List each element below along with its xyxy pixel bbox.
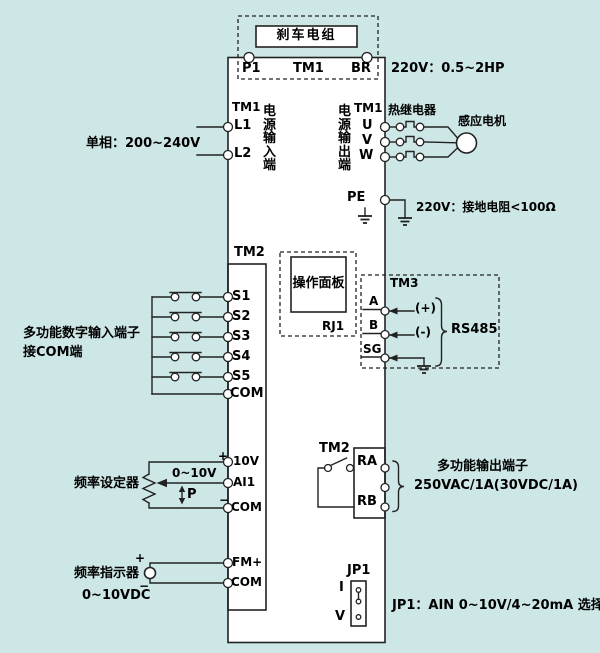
terminal-br-label: BR — [351, 62, 371, 76]
jp1-note: JP1：AIN 0~10V/4~20mA 选择 — [392, 599, 600, 613]
tm1-top-label: TM1 — [293, 62, 324, 76]
ao-plus-sign: + — [135, 552, 145, 565]
ground-note: 220V：接地电阻<100Ω — [416, 201, 556, 214]
terminal-s1-label: S1 — [232, 290, 250, 304]
operation-panel-label: 操作面板 — [291, 277, 346, 291]
thermal-relay-label: 热继电器 — [388, 104, 436, 117]
terminal-s2-label: S2 — [232, 310, 250, 324]
terminal-10v-label: 10V — [233, 455, 259, 468]
switch-s3 — [152, 333, 224, 341]
rs485-label: RS485 — [451, 323, 498, 337]
terminal-fm-label: FM+ — [232, 556, 262, 569]
relay-note-line1: 多功能输出端子 — [437, 460, 528, 474]
digital-input-note-line1: 多功能数字输入端子 — [23, 327, 140, 341]
motor-label: 感应电机 — [458, 115, 506, 128]
switch-s2 — [152, 313, 224, 321]
jp1-i-label: I — [339, 581, 344, 595]
terminal-s5-label: S5 — [232, 370, 250, 384]
ground-symbol-sg — [417, 366, 431, 373]
input-phase-note: 单相：200~240V — [86, 137, 200, 151]
terminal-b-circle — [381, 331, 389, 339]
terminal-v-label: V — [362, 134, 372, 148]
terminal-ocom-label: COM — [231, 576, 262, 589]
tm3-label: TM3 — [390, 277, 418, 290]
ai-minus-sign: − — [219, 494, 229, 507]
terminal-mid-circle — [381, 484, 389, 492]
terminal-pe-circle — [381, 196, 390, 205]
thermal-relay-v — [390, 137, 457, 146]
switch-s5 — [152, 373, 224, 381]
digital-input-wires — [152, 293, 224, 395]
wiring-diagram-canvas: 刹车电组 P1 TM1 BR 220V：0.5~2HP TM1 L1 L2 单相… — [0, 0, 600, 653]
brake-unit-label: 刹车电组 — [256, 29, 357, 43]
relay-note-line2: 250VAC/1A(30VDC/1A) — [414, 479, 578, 493]
ground-symbol-external — [398, 218, 412, 225]
pot-label: 频率设定器 — [74, 477, 139, 491]
terminal-u-label: U — [362, 119, 373, 133]
terminal-ai1-circle — [224, 479, 233, 488]
terminal-sg-circle — [381, 354, 389, 362]
ai-plus-sign: + — [218, 450, 228, 463]
terminal-ai1-label: AI1 — [233, 476, 255, 489]
meter-symbol — [145, 568, 156, 579]
ai-range-label: 0~10V — [172, 467, 216, 480]
terminal-rb-label: RB — [357, 495, 377, 509]
tm1-output-label: TM1 — [354, 102, 382, 115]
tm2-strip-label: TM2 — [234, 246, 265, 260]
potentiometer-symbol — [143, 474, 155, 503]
terminal-a-circle — [381, 307, 389, 315]
motor-symbol — [457, 133, 477, 153]
thermal-relay-u — [390, 122, 458, 139]
power-input-vlabel: 电源输入端 — [262, 105, 277, 173]
terminal-p1-label: P1 — [242, 62, 261, 76]
digital-input-note-line2: 接COM端 — [23, 346, 83, 360]
terminal-l1-label: L1 — [234, 119, 251, 133]
power-input-wires — [197, 127, 224, 155]
tm1-input-label: TM1 — [232, 101, 260, 114]
rs485-brace — [436, 298, 447, 366]
terminal-w-circle — [381, 153, 390, 162]
terminal-acom-label: COM — [231, 501, 262, 514]
switch-s1 — [152, 293, 224, 301]
thermal-relay-w — [390, 148, 458, 161]
tm2-relay-label: TM2 — [319, 442, 350, 456]
rj1-label: RJ1 — [322, 320, 344, 333]
terminal-u-circle — [381, 123, 390, 132]
terminal-l2-label: L2 — [234, 147, 251, 161]
terminal-b-label: B — [369, 319, 378, 332]
terminal-sg-label: SG — [363, 343, 382, 356]
terminal-ra-label: RA — [357, 455, 377, 469]
terminal-l2-circle — [224, 151, 233, 160]
terminal-ra-circle — [381, 464, 389, 472]
jp1-v-label: V — [335, 610, 345, 624]
relay-brace — [393, 461, 404, 512]
power-output-vlabel: 电源输出端 — [337, 105, 352, 173]
terminal-l1-circle — [224, 123, 233, 132]
meter-label: 频率指示器 — [74, 567, 139, 581]
terminal-a-label: A — [369, 295, 378, 308]
brake-rating-note: 220V：0.5~2HP — [391, 62, 505, 76]
switch-s4 — [152, 353, 224, 361]
terminal-s3-label: S3 — [232, 330, 250, 344]
jp1-label: JP1 — [347, 564, 370, 578]
terminal-com-label: COM — [230, 387, 264, 401]
terminal-rb-circle — [381, 503, 389, 511]
ao-range-label: 0~10VDC — [82, 589, 150, 603]
pot-p-label: P — [187, 488, 197, 502]
terminal-pe-label: PE — [347, 191, 365, 205]
terminal-w-label: W — [359, 149, 373, 163]
rs485-plus-label: (+) — [415, 302, 436, 315]
jp1-pins — [356, 588, 361, 620]
rs485-minus-label: (-) — [415, 326, 431, 339]
terminal-v-circle — [381, 138, 390, 147]
analog-output-wires — [145, 563, 224, 583]
terminal-s4-label: S4 — [232, 350, 250, 364]
